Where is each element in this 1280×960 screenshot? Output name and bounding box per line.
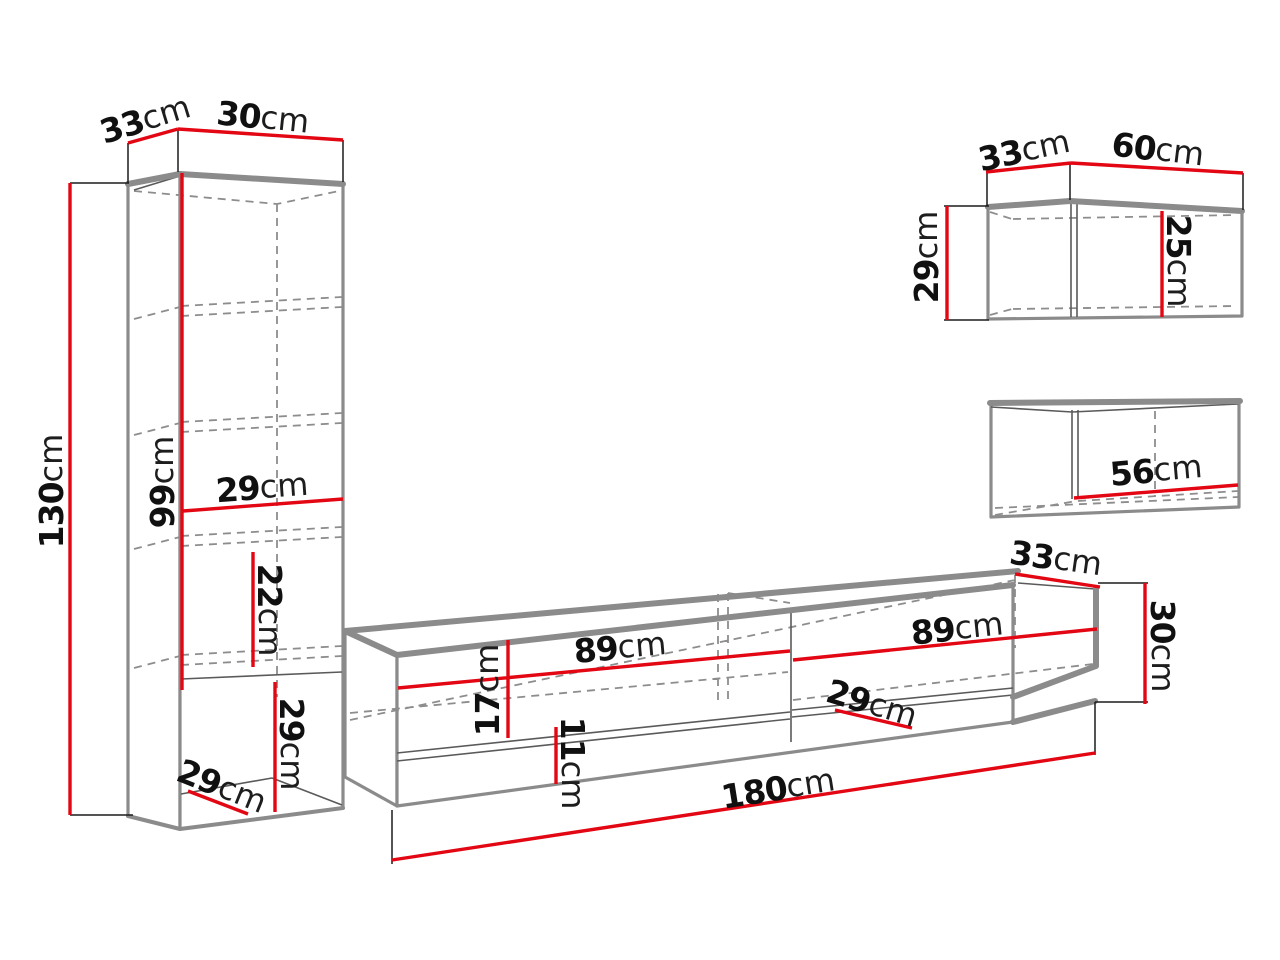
wall-cabinet-upper-body bbox=[988, 201, 1242, 319]
dim-wall-cabinet-upper-inner-height: 25cm bbox=[1160, 215, 1199, 308]
dim-tall-cabinet-upper-height: 99cm bbox=[143, 436, 182, 529]
dim-tall-cabinet-open-height: 29cm bbox=[273, 698, 312, 791]
wall-cabinet-lower-drawing: 56cm bbox=[990, 401, 1240, 517]
tv-stand-drawing: 89cm 17cm 11cm 89cm 29cm 180cm 33cm 30cm bbox=[345, 532, 1183, 864]
dim-tv-stand-drawer-height: 11cm bbox=[554, 717, 593, 810]
dim-tall-cabinet-inner-width: 29cm bbox=[214, 464, 309, 509]
dim-tall-cabinet-height: 130cm bbox=[32, 434, 71, 549]
dim-tall-cabinet-depth: 33cm bbox=[95, 87, 195, 151]
wall-cabinet-upper-drawing: 33cm 60cm 29cm 25cm bbox=[907, 121, 1244, 320]
dim-wall-cabinet-upper-height: 29cm bbox=[907, 211, 946, 304]
dim-tv-stand-height: 30cm bbox=[1144, 600, 1183, 693]
dim-wall-cabinet-upper-depth: 33cm bbox=[975, 121, 1074, 178]
dim-tall-cabinet-shelf-spacing: 22cm bbox=[251, 564, 290, 657]
dim-tv-stand-length: 180cm bbox=[718, 760, 837, 816]
tall-cabinet-drawing: 33cm 30cm 130cm 99cm 29cm 22cm 29cm 29cm bbox=[32, 87, 344, 829]
furniture-dimension-diagram: 33cm 30cm 130cm 99cm 29cm 22cm 29cm 29cm… bbox=[0, 0, 1280, 960]
dim-tv-stand-open-height: 17cm bbox=[468, 644, 507, 737]
diagram-canvas: 33cm 30cm 130cm 99cm 29cm 22cm 29cm 29cm… bbox=[0, 0, 1280, 960]
wall-cabinet-lower-top-edge bbox=[990, 401, 1240, 403]
